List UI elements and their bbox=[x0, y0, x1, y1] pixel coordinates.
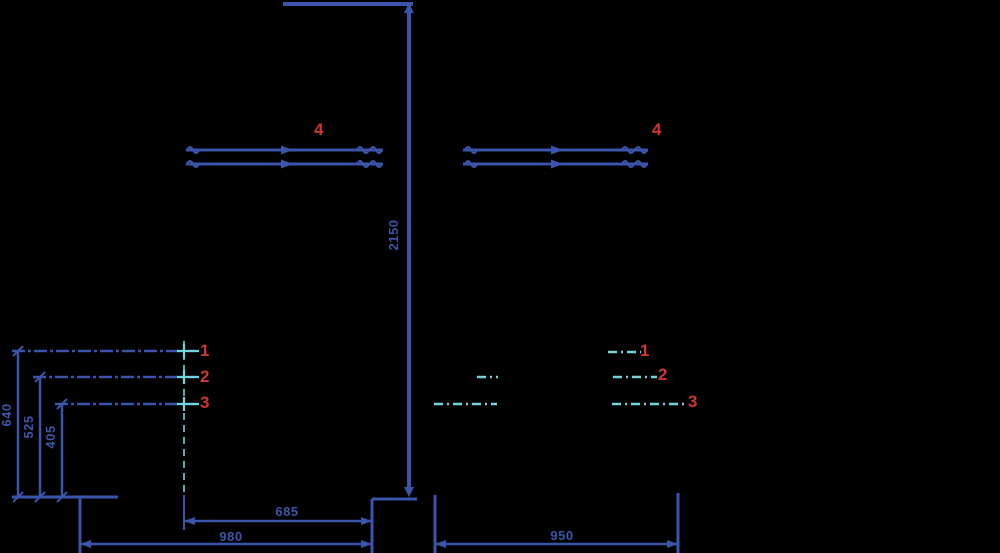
linework-svg bbox=[0, 0, 1000, 553]
callout-4-left: 4 bbox=[314, 121, 323, 138]
dim-left-height-2-text: 525 bbox=[22, 400, 36, 454]
cable-cross-markers-left bbox=[177, 344, 199, 411]
dim-left-height-1-text: 640 bbox=[0, 388, 14, 442]
arrowheads bbox=[80, 3, 678, 548]
callout-1-left: 1 bbox=[200, 342, 209, 359]
callout-1-right: 1 bbox=[640, 342, 649, 359]
pole-base-outline bbox=[372, 499, 417, 553]
cad-drawing-canvas: 4 4 1 2 3 1 2 3 2150 640 525 405 685 980… bbox=[0, 0, 1000, 553]
dim-950-text: 950 bbox=[542, 529, 582, 542]
callout-4-right: 4 bbox=[652, 121, 661, 138]
callout-3-left: 3 bbox=[200, 394, 209, 411]
callout-3-right: 3 bbox=[688, 393, 697, 410]
dim-980-text: 980 bbox=[211, 530, 251, 543]
dim-685-text: 685 bbox=[267, 505, 307, 518]
callout-2-right: 2 bbox=[658, 366, 667, 383]
callout-2-left: 2 bbox=[200, 368, 209, 385]
cable-dashed-lines-right bbox=[434, 352, 688, 404]
dim-left-height-3-text: 405 bbox=[44, 410, 58, 464]
dim-pole-height-text: 2150 bbox=[387, 208, 401, 262]
